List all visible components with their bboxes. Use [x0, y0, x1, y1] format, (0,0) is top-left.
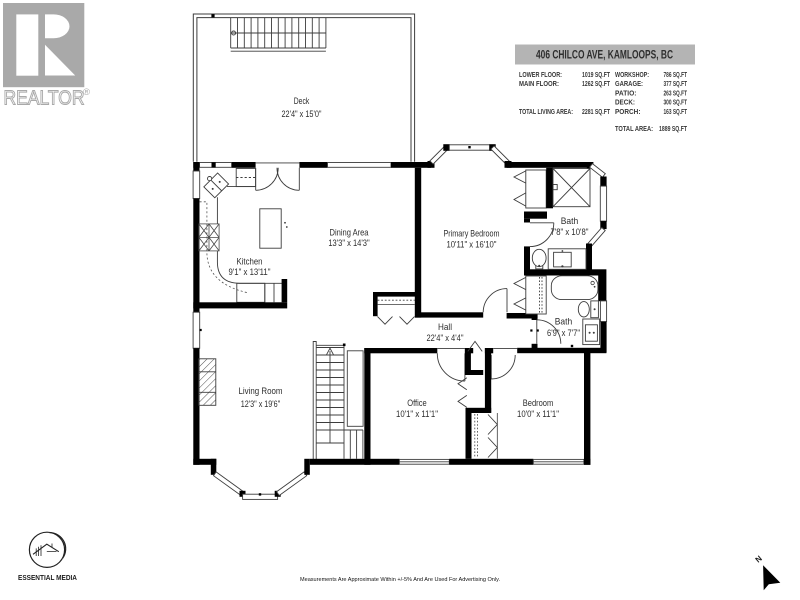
svg-text:10'1" x 11'1": 10'1" x 11'1"	[396, 409, 438, 419]
svg-text:12'3" x 19'6": 12'3" x 19'6"	[241, 399, 281, 409]
svg-text:GARAGE:: GARAGE:	[615, 79, 643, 88]
svg-text:TOTAL LIVING AREA:: TOTAL LIVING AREA:	[519, 107, 573, 116]
svg-text:DECK:: DECK:	[615, 98, 635, 107]
svg-text:22'4" x 15'0": 22'4" x 15'0"	[282, 109, 322, 119]
svg-text:WORKSHOP:: WORKSHOP:	[615, 70, 649, 79]
svg-text:300 SQ.FT: 300 SQ.FT	[664, 98, 688, 107]
svg-text:Kitchen: Kitchen	[237, 257, 263, 267]
svg-text:9'1" x 13'11": 9'1" x 13'11"	[229, 267, 271, 277]
svg-text:Bath: Bath	[561, 216, 579, 226]
svg-text:Living Room: Living Room	[239, 386, 283, 396]
svg-text:2281 SQ.FT: 2281 SQ.FT	[582, 107, 610, 116]
svg-text:406 CHILCO AVE, KAMLOOPS, BC: 406 CHILCO AVE, KAMLOOPS, BC	[536, 48, 673, 62]
svg-text:6'9" x 7'7": 6'9" x 7'7"	[547, 328, 580, 338]
svg-text:22'4" x 4'4": 22'4" x 4'4"	[427, 333, 464, 343]
svg-text:13'3" x 14'3": 13'3" x 14'3"	[328, 238, 369, 248]
svg-text:Dining Area: Dining Area	[330, 227, 370, 237]
svg-text:163 SQ.FT: 163 SQ.FT	[664, 107, 688, 116]
svg-text:Office: Office	[407, 398, 427, 408]
svg-text:7'8" x 10'8": 7'8" x 10'8"	[551, 227, 589, 237]
svg-text:TOTAL AREA:: TOTAL AREA:	[615, 124, 653, 133]
svg-text:1889 SQ.FT: 1889 SQ.FT	[659, 124, 687, 133]
svg-text:1019 SQ.FT: 1019 SQ.FT	[582, 70, 610, 79]
svg-text:263 SQ.FT: 263 SQ.FT	[664, 88, 688, 97]
svg-text:PATIO:: PATIO:	[615, 88, 637, 97]
svg-text:Hall: Hall	[438, 322, 452, 332]
svg-text:PORCH:: PORCH:	[615, 107, 641, 116]
svg-text:1262 SQ.FT: 1262 SQ.FT	[582, 79, 610, 88]
svg-text:377 SQ.FT: 377 SQ.FT	[664, 79, 688, 88]
svg-text:LOWER FLOOR:: LOWER FLOOR:	[519, 70, 562, 79]
svg-text:10'0" x 11'1": 10'0" x 11'1"	[517, 409, 559, 419]
svg-text:10'11" x 16'10": 10'11" x 16'10"	[447, 240, 497, 250]
svg-text:Measurements Are Approximate W: Measurements Are Approximate Within +/-5…	[300, 577, 500, 583]
svg-text:®: ®	[83, 87, 90, 98]
svg-text:786 SQ.FT: 786 SQ.FT	[664, 70, 688, 79]
svg-text:MAIN FLOOR:: MAIN FLOOR:	[519, 79, 559, 88]
svg-text:Bedroom: Bedroom	[523, 398, 554, 408]
svg-text:Deck: Deck	[294, 96, 310, 106]
svg-text:ESSENTIAL MEDIA: ESSENTIAL MEDIA	[18, 573, 77, 582]
svg-text:Primary Bedroom: Primary Bedroom	[444, 229, 500, 239]
svg-text:Bath: Bath	[555, 317, 573, 327]
svg-text:REALTOR: REALTOR	[4, 86, 85, 109]
